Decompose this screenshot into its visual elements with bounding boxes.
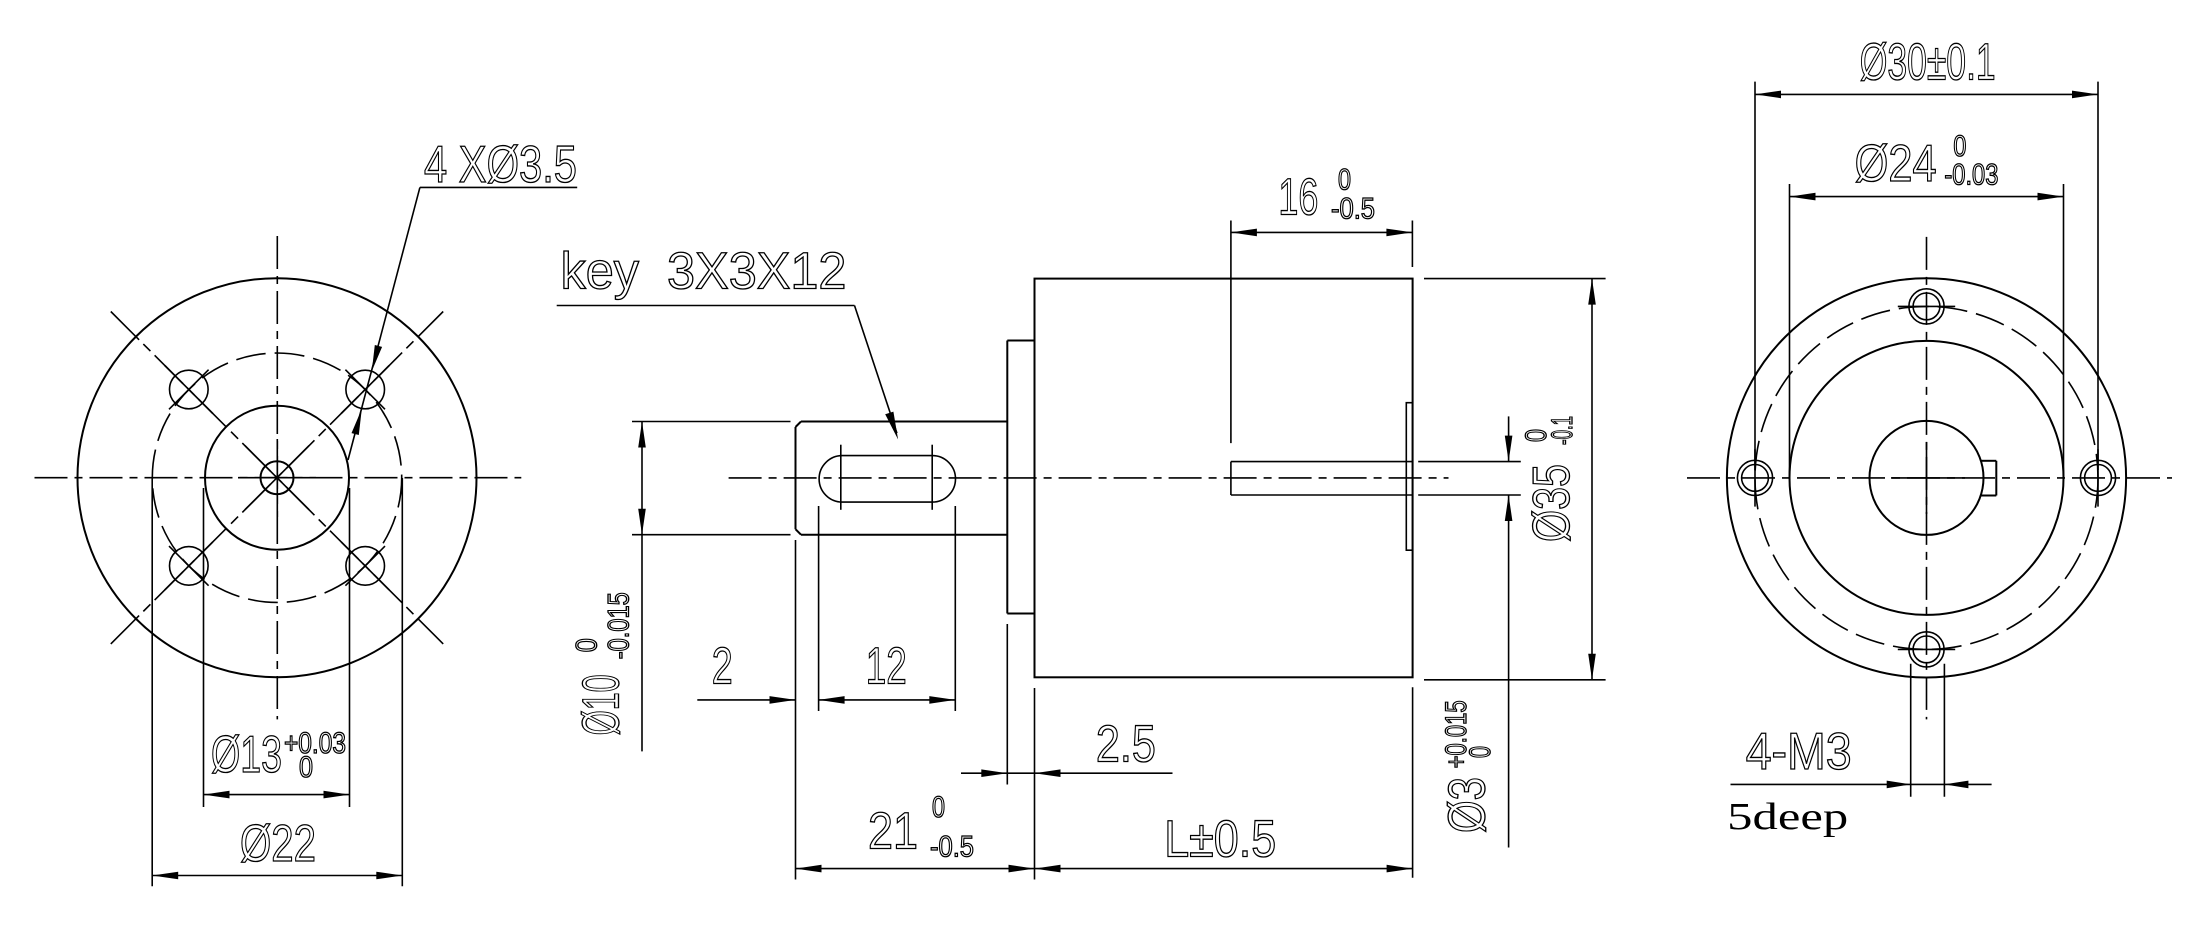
svg-text:0: 0: [1464, 746, 1497, 758]
svg-text:Ø24: Ø24: [1855, 135, 1937, 193]
svg-text:-0.03: -0.03: [1944, 158, 1998, 191]
svg-text:21: 21: [868, 803, 918, 861]
svg-text:Ø35: Ø35: [1523, 464, 1581, 542]
svg-text:-0.5: -0.5: [1331, 193, 1375, 226]
svg-text:2.5: 2.5: [1096, 716, 1156, 774]
svg-text:Ø13: Ø13: [211, 726, 282, 784]
svg-text:0: 0: [932, 791, 945, 824]
svg-text:+0.03: +0.03: [284, 727, 346, 760]
svg-text:Ø30±0.1: Ø30±0.1: [1860, 34, 1996, 92]
svg-text:-0.1: -0.1: [1546, 416, 1579, 445]
svg-text:16: 16: [1278, 169, 1318, 227]
svg-text:Ø10: Ø10: [573, 674, 631, 735]
svg-text:0: 0: [299, 751, 313, 784]
svg-text:4 XØ3.5: 4 XØ3.5: [424, 136, 577, 194]
svg-text:0: 0: [571, 638, 604, 652]
svg-text:key 3X3X12: key 3X3X12: [561, 243, 847, 301]
svg-text:5deep: 5deep: [1727, 796, 1848, 838]
svg-text:-0.015: -0.015: [602, 592, 635, 659]
svg-text:4-M3: 4-M3: [1746, 723, 1852, 781]
svg-text:-0.5: -0.5: [930, 831, 974, 864]
svg-text:12: 12: [866, 638, 907, 696]
svg-text:Ø3: Ø3: [1439, 777, 1497, 833]
svg-text:2: 2: [712, 638, 733, 696]
svg-text:L±0.5: L±0.5: [1164, 811, 1276, 869]
svg-text:Ø22: Ø22: [240, 815, 316, 873]
